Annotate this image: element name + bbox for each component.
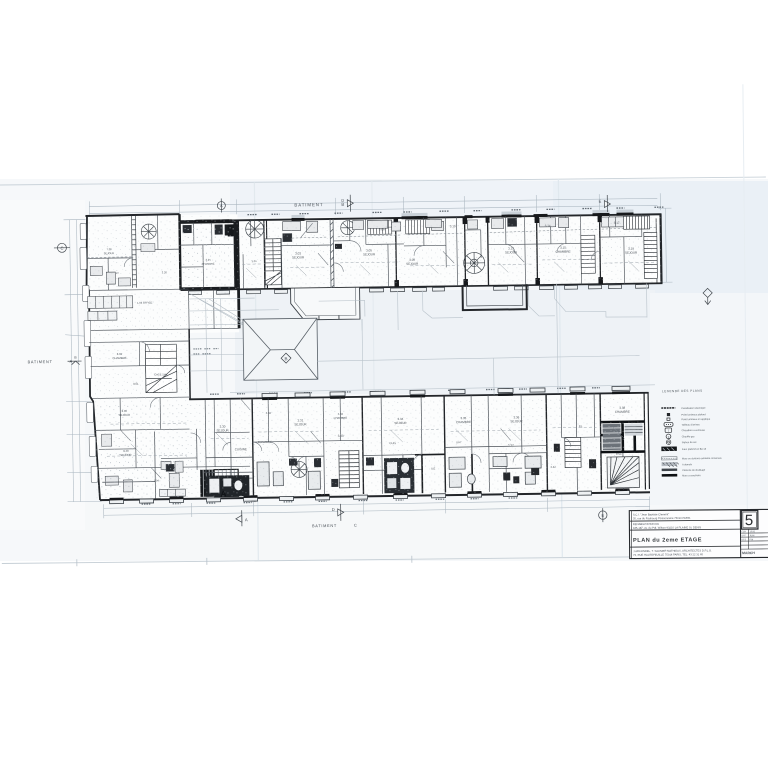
svg-text:Tableau d'arrivee: Tableau d'arrivee xyxy=(682,423,701,426)
svg-text:BATIMENT: BATIMENT xyxy=(294,202,323,207)
svg-text:REHABILITATION DU: REHABILITATION DU xyxy=(633,522,659,526)
svg-text:Chaudiere a ventouse: Chaudiere a ventouse xyxy=(682,429,706,432)
svg-text:DES: DES xyxy=(742,539,747,541)
svg-text:B: B xyxy=(341,202,344,207)
svg-text:DAT: DAT xyxy=(741,534,746,537)
svg-text:Chauffe gaz: Chauffe gaz xyxy=(682,435,696,438)
svg-text:C: C xyxy=(354,523,357,528)
svg-text:MARCH: MARCH xyxy=(742,551,755,555)
svg-text:Murs a construire: Murs a construire xyxy=(682,474,701,477)
svg-text:Canalisation electrique: Canalisation electrique xyxy=(681,407,706,410)
svg-text:C: C xyxy=(60,246,63,251)
svg-text:2.80: 2.80 xyxy=(251,500,256,503)
svg-text:JUIN: JUIN xyxy=(750,535,755,537)
svg-text:E: E xyxy=(601,513,604,518)
svg-text:A demolir: A demolir xyxy=(682,463,692,466)
svg-text:Cloisons de doublage: Cloisons de doublage xyxy=(682,469,706,472)
svg-text:Point lumineux plafond: Point lumineux plafond xyxy=(681,413,706,416)
svg-text:A: A xyxy=(245,517,248,522)
svg-text:ECH: ECH xyxy=(741,531,746,533)
svg-text:PLAN du 2eme ETAGE: PLAN du 2eme ETAGE xyxy=(633,537,702,544)
svg-text:BATIMENT: BATIMENT xyxy=(312,523,337,528)
svg-text:BATIMENT: BATIMENT xyxy=(28,359,53,364)
svg-text:B: B xyxy=(284,356,287,361)
svg-text:D: D xyxy=(332,507,335,512)
svg-text:185-187, av. du Pdt. Wilson: 185-187, av. du Pdt. Wilson 93210 LA PLA… xyxy=(633,525,701,530)
svg-text:LEGENDE DES PLANS: LEGENDE DES PLANS xyxy=(662,389,703,394)
svg-text:S.C.I. "Jean Baptiste Clement: S.C.I. "Jean Baptiste Clement" xyxy=(633,512,669,516)
svg-text:A: A xyxy=(220,203,223,208)
svg-text:Murs ou cloisons existants: Murs ou cloisons existants conserves xyxy=(682,457,722,461)
svg-text:E: E xyxy=(599,199,602,204)
svg-text:5: 5 xyxy=(745,512,753,529)
svg-text:Siphon de sol: Siphon de sol xyxy=(682,441,697,444)
svg-text:Faux plafond en BA 13: Faux plafond en BA 13 xyxy=(682,448,707,451)
svg-text:1/100: 1/100 xyxy=(749,531,755,533)
svg-text:73, RUE HAUTEFEUILLE 75014: 73, RUE HAUTEFEUILLE 75014 PARIS, TEL. 4… xyxy=(633,552,703,557)
svg-text:Point lumineux en applique: Point lumineux en applique xyxy=(681,418,710,421)
svg-text:P.M: P.M xyxy=(750,539,754,541)
svg-text:35, rue du Faubourg Poissonnie: 35, rue du Faubourg Poissonniere 75010 P… xyxy=(633,516,691,521)
